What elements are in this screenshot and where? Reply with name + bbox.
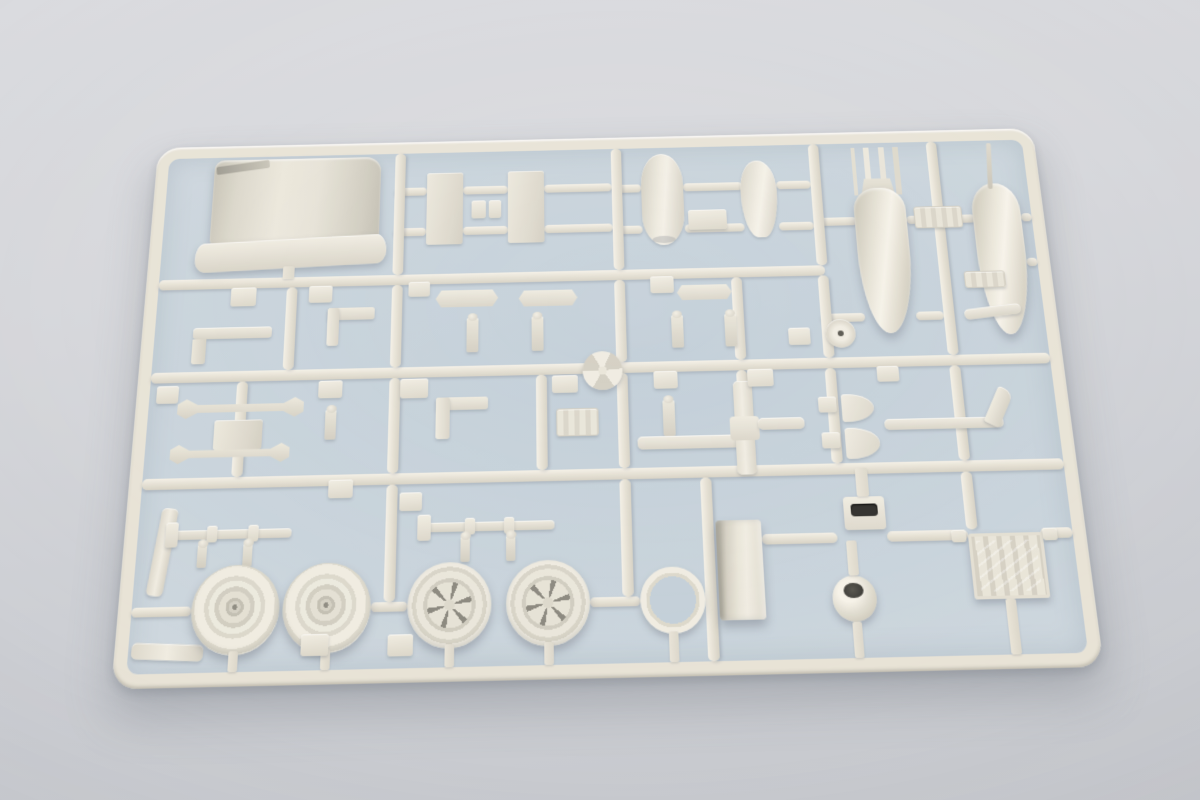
half-disc-upper <box>841 394 875 422</box>
fitting-plate <box>964 270 1007 288</box>
fitting-sq-i <box>552 375 578 393</box>
main-wheel-left <box>188 564 282 657</box>
connector-block-a <box>471 200 485 218</box>
fuselage-spine <box>640 154 686 246</box>
wheel-stem-a <box>227 651 238 672</box>
axle-pin-c <box>460 537 470 562</box>
ball-stub <box>846 540 859 575</box>
axle-pin-b <box>242 544 253 567</box>
axle-collar-a <box>206 526 217 543</box>
fitting-sq-l <box>818 396 837 412</box>
stem-block-b <box>387 634 413 657</box>
wheel-stem-c <box>444 644 454 667</box>
bracket-l <box>435 397 488 440</box>
pitot-antenna <box>986 143 993 189</box>
gear-leg-tip <box>984 385 1014 427</box>
grille-pin-left <box>951 530 967 543</box>
stem-block-a <box>300 634 328 657</box>
fitting-sq-d <box>650 276 674 293</box>
fitting-sq-e <box>788 327 811 345</box>
intake-box <box>715 520 766 621</box>
knob-pin-f <box>662 400 675 436</box>
stabilizer-small-right <box>519 289 578 306</box>
rack-bracket <box>913 206 963 229</box>
bracket-b <box>556 408 599 437</box>
fitting-sq-h <box>400 378 428 398</box>
axle-rod-left <box>174 528 292 540</box>
fitting-sq-g <box>318 380 343 398</box>
wheel-hub-cap <box>825 319 857 348</box>
wing-spar-long <box>637 434 741 449</box>
part-layer <box>111 128 1104 689</box>
knob-pin-b <box>532 316 544 351</box>
knob-pin-e <box>324 410 336 440</box>
fitting-sq-f <box>156 386 179 404</box>
fitting-sq-n <box>876 366 899 382</box>
wing-strip <box>145 508 179 598</box>
knob-pin-c <box>671 315 684 348</box>
radiator-grille <box>968 532 1051 600</box>
wing-spar-short <box>758 417 805 430</box>
axle-fork-right <box>417 515 431 541</box>
slot-box <box>843 496 887 530</box>
ring-stem <box>669 631 680 662</box>
stabilizer-small-center <box>677 284 732 300</box>
tail-cone <box>739 160 780 238</box>
frame-box <box>213 419 263 450</box>
connector-block-b <box>489 200 501 218</box>
slot-box-stub <box>855 468 870 497</box>
cowling-gate-stub <box>283 266 295 279</box>
photo-background <box>0 0 1200 800</box>
axle-pin-d <box>506 536 515 561</box>
fitting-sq-k <box>747 369 774 387</box>
cowl-ring <box>639 566 707 634</box>
fitting-sq-m <box>821 432 840 448</box>
grille-pin-right <box>1042 527 1058 540</box>
flat-panel-right <box>508 171 545 243</box>
sprue <box>111 128 1104 689</box>
fitting-sq-b <box>309 286 333 303</box>
knob-pin-a <box>466 318 478 353</box>
tail-plane-upper <box>177 397 304 420</box>
spoked-hub-left <box>406 561 491 649</box>
fitting-sq-a <box>230 287 257 306</box>
spinner-backplate <box>582 351 623 391</box>
knob-pin-d <box>724 314 738 347</box>
half-disc-lower <box>844 427 881 459</box>
control-ball <box>831 575 879 622</box>
axle-rod-right <box>427 520 555 532</box>
grille-stem <box>1005 599 1022 655</box>
ball-stem <box>852 622 864 658</box>
elbow-bracket <box>326 307 375 346</box>
spar-upright <box>733 381 757 475</box>
bomb-body <box>852 187 918 334</box>
flat-panel-left <box>426 173 463 245</box>
elbow-pipe-long <box>193 326 272 339</box>
stabilizer-small-left <box>436 289 499 307</box>
photo-of-model-kit-sprue: { "scene": { "description": "Photograph … <box>0 0 1200 800</box>
axle-fork-left <box>165 522 179 547</box>
edge-strip <box>130 643 204 662</box>
fitting-sq-j <box>653 371 678 389</box>
fitting-sq-o <box>328 479 353 498</box>
spoked-hub-right <box>506 559 591 647</box>
fitting-sq-c <box>408 282 430 297</box>
wheel-stem-d <box>544 642 554 665</box>
axle-pin-a <box>196 545 207 568</box>
fitting-sq-p <box>399 492 422 511</box>
spine-block <box>688 209 727 230</box>
